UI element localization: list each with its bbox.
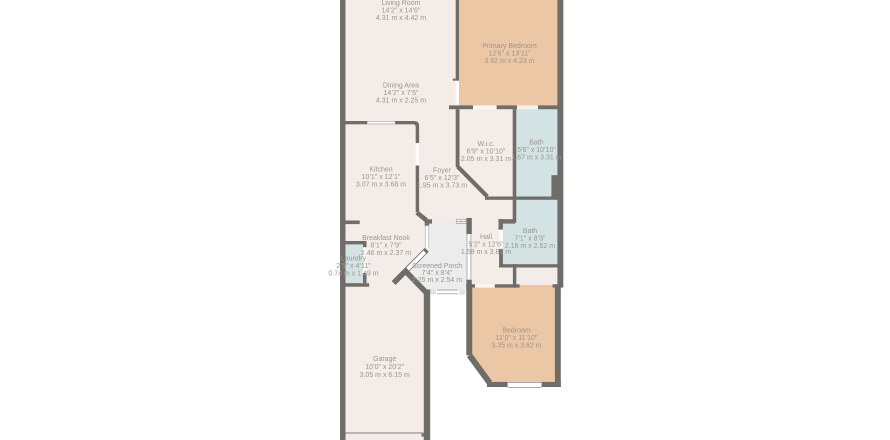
svg-text:11’0" x 11’10": 11’0" x 11’10" xyxy=(496,335,538,342)
svg-text:14’2" x 7’5": 14’2" x 7’5" xyxy=(384,90,419,97)
svg-text:0.74 m x 1.49 m: 0.74 m x 1.49 m xyxy=(328,271,378,278)
svg-text:1.95 m x 3.73 m: 1.95 m x 3.73 m xyxy=(417,182,467,189)
svg-text:12’6" x 13’11": 12’6" x 13’11" xyxy=(488,50,531,57)
svg-text:3.82 m x 4.23 m: 3.82 m x 4.23 m xyxy=(484,58,534,65)
svg-text:Bedroom: Bedroom xyxy=(502,328,531,335)
svg-text:8’1" x 7’9": 8’1" x 7’9" xyxy=(370,242,402,249)
svg-text:7’1" x 8’3": 7’1" x 8’3" xyxy=(514,235,546,242)
svg-text:Living Room: Living Room xyxy=(382,0,421,7)
svg-text:10’0" x 20’2": 10’0" x 20’2" xyxy=(365,364,404,371)
svg-text:Kitchen: Kitchen xyxy=(369,167,392,174)
svg-text:Hall: Hall xyxy=(480,234,493,241)
svg-text:2.46 m x 2.37 m: 2.46 m x 2.37 m xyxy=(361,250,411,257)
svg-text:6’9" x 10’10": 6’9" x 10’10" xyxy=(467,148,506,155)
svg-text:2’5" x 4’11": 2’5" x 4’11" xyxy=(336,263,371,270)
svg-text:Bath: Bath xyxy=(523,228,538,235)
svg-text:Dining Area: Dining Area xyxy=(383,83,419,90)
svg-text:5’2" x 12’6": 5’2" x 12’6" xyxy=(469,241,504,248)
svg-text:Foyer: Foyer xyxy=(433,168,452,175)
svg-text:2.25 m x 2.54 m: 2.25 m x 2.54 m xyxy=(412,277,462,284)
svg-text:Primary Bedroom: Primary Bedroom xyxy=(482,43,537,50)
svg-text:14’2" x 14’6": 14’2" x 14’6" xyxy=(382,7,421,14)
svg-text:3.05 m x 6.15 m: 3.05 m x 6.15 m xyxy=(360,372,410,379)
svg-text:5’6" x 10’10": 5’6" x 10’10" xyxy=(517,147,556,154)
svg-text:2.16 m x 2.52 m: 2.16 m x 2.52 m xyxy=(505,243,555,250)
svg-text:1.58 m x 3.81 m: 1.58 m x 3.81 m xyxy=(461,249,511,256)
svg-text:Laundry: Laundry xyxy=(341,256,367,263)
svg-text:Garage: Garage xyxy=(373,356,396,363)
svg-text:4.31 m x 4.42 m: 4.31 m x 4.42 m xyxy=(376,15,426,22)
svg-text:2.05 m x 3.31 m: 2.05 m x 3.31 m xyxy=(461,156,511,163)
svg-text:Breakfast Nook: Breakfast Nook xyxy=(362,235,410,242)
svg-text:4.31 m x 2.25 m: 4.31 m x 2.25 m xyxy=(376,97,426,104)
svg-text:3.35 m x 3.62 m: 3.35 m x 3.62 m xyxy=(491,342,541,349)
svg-text:6’5" x 12’3": 6’5" x 12’3" xyxy=(425,175,460,182)
svg-text:3.07 m x 3.68 m: 3.07 m x 3.68 m xyxy=(356,181,406,188)
svg-text:Bath: Bath xyxy=(529,140,544,147)
svg-text:1.67 m x 3.31 m: 1.67 m x 3.31 m xyxy=(511,154,561,161)
svg-text:10’1" x 12’1": 10’1" x 12’1" xyxy=(362,174,401,181)
svg-text:W.i.c.: W.i.c. xyxy=(477,141,494,148)
